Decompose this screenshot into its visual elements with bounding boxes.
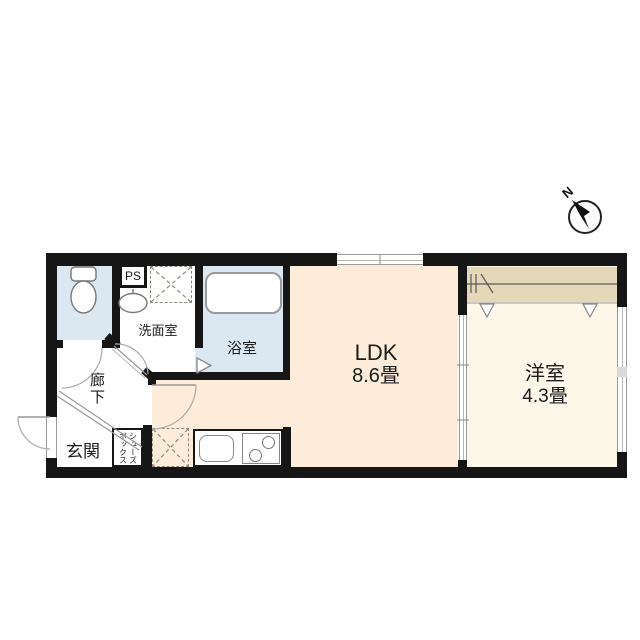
compass-north-label: N: [559, 184, 576, 202]
wall-partition-top: [458, 265, 467, 315]
ldk-label: LDK: [300, 340, 452, 365]
western-room-label-block: 洋室 4.3畳: [480, 362, 610, 409]
washroom-label: 洗面室: [120, 320, 196, 339]
refrigerator-area: [152, 428, 189, 467]
western-room-label: 洋室: [480, 362, 610, 386]
wall-kitchen-stub: [283, 427, 291, 467]
wall-bottom: [46, 467, 627, 478]
stove-icon: [242, 433, 280, 464]
washbasin-icon: [119, 289, 147, 313]
north-compass: N: [559, 184, 601, 233]
pipe-space: PS: [119, 264, 147, 288]
ps-label: PS: [122, 269, 144, 283]
wall-top-right: [423, 253, 627, 266]
washing-machine-area: [150, 266, 192, 303]
bathtub-icon: [205, 272, 282, 314]
shoe-box-label: シューズボックス: [118, 432, 138, 464]
bathroom-label: 浴室: [203, 337, 281, 358]
window-western-right: [617, 307, 627, 452]
sink-icon: [199, 435, 234, 462]
entrance-door-opening: [46, 417, 57, 458]
wall-toilet-bottom-a: [57, 340, 63, 348]
wall-entrance-kitchen: [143, 425, 152, 467]
window-mullion: [617, 367, 627, 377]
stove-burner-right: [262, 436, 275, 449]
wall-bath-right: [283, 265, 290, 380]
wall-bath-left: [195, 265, 203, 348]
wall-left-upper: [46, 253, 57, 417]
hallway-label: 廊下: [86, 372, 107, 406]
ldk-size-label: 8.6畳: [300, 365, 452, 388]
wall-right-lower: [617, 452, 627, 478]
toilet-room: [57, 265, 112, 340]
western-room-size-label: 4.3畳: [480, 386, 610, 409]
wall-right-upper: [617, 253, 627, 307]
closet: [467, 267, 617, 302]
wall-left-lower: [46, 458, 57, 478]
ldk-label-block: LDK 8.6畳: [300, 340, 452, 388]
wall-partition-bottom: [458, 460, 467, 467]
wall-bath-bottom: [150, 372, 290, 380]
shoe-box: シューズボックス: [112, 428, 143, 467]
sliding-door-ldk-western: [459, 315, 467, 460]
floor-plan: PS シューズボックス: [0, 0, 640, 640]
compass-arrow-icon: [572, 200, 590, 229]
stove-burner-left: [249, 449, 262, 462]
wall-top-left: [46, 253, 337, 266]
window-ldk-top: [337, 254, 423, 265]
entrance-label: 玄関: [57, 437, 109, 462]
